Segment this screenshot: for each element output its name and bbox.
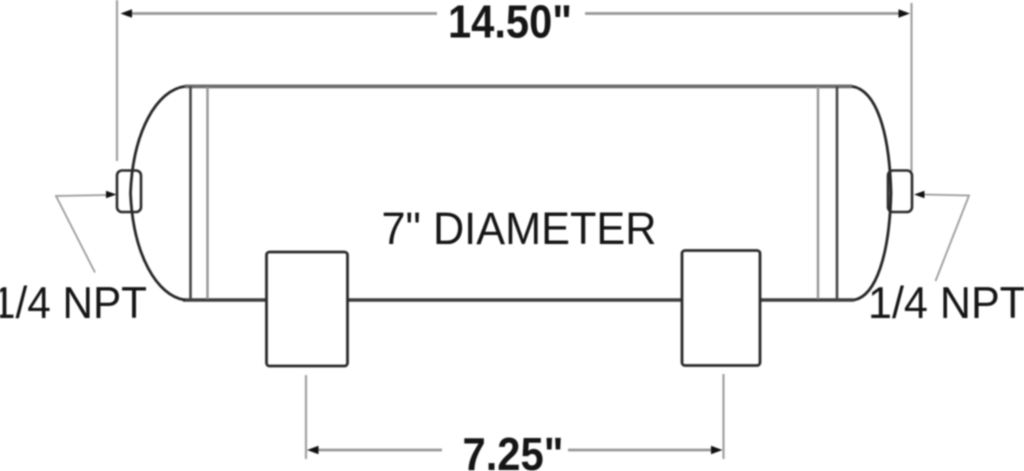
svg-text:7" DIAMETER: 7" DIAMETER: [382, 203, 657, 254]
svg-text:14.50": 14.50": [448, 0, 572, 48]
svg-text:1/4 NPT: 1/4 NPT: [0, 279, 147, 328]
svg-text:1/4 NPT: 1/4 NPT: [868, 279, 1024, 328]
svg-text:7.25": 7.25": [463, 428, 564, 471]
